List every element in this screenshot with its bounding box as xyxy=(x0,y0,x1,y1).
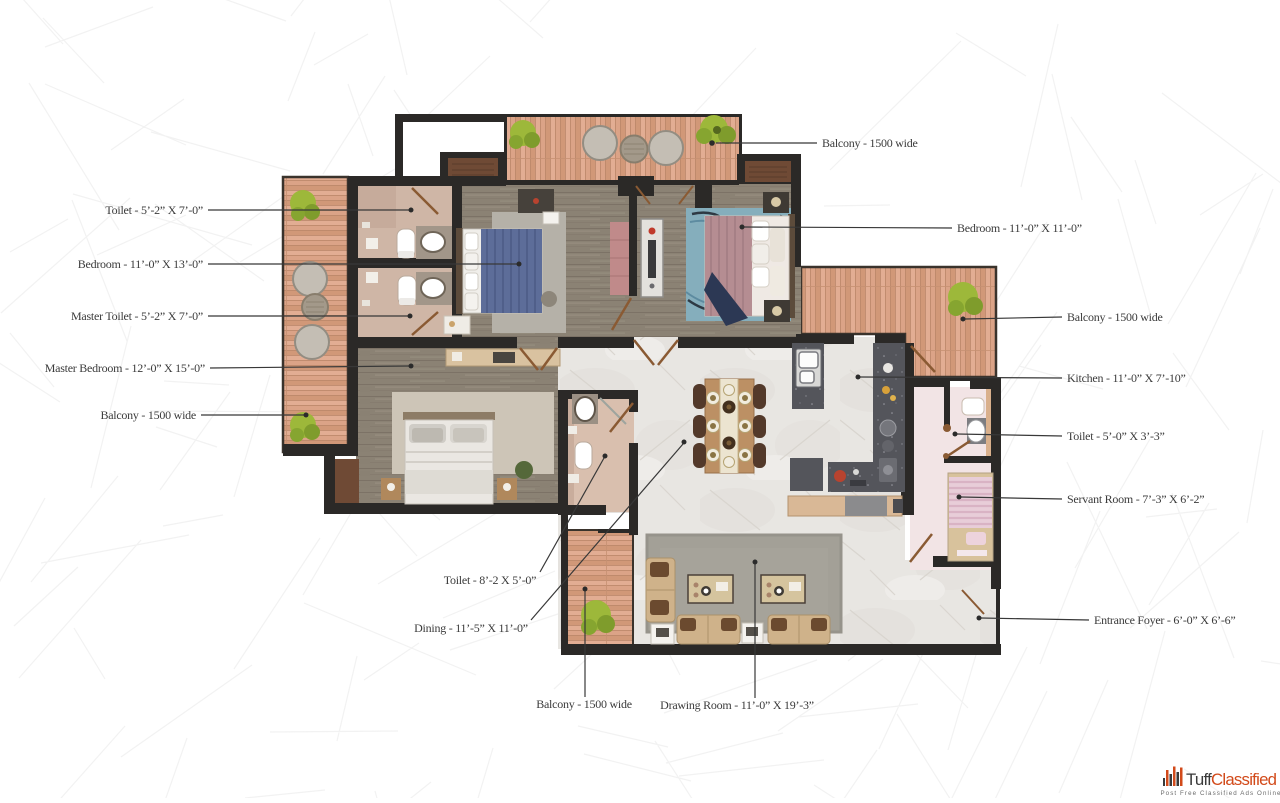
svg-text:Balcony - 1500 wide: Balcony - 1500 wide xyxy=(1067,310,1163,324)
svg-text:Toilet - 5’-0” X 3’-3”: Toilet - 5’-0” X 3’-3” xyxy=(1067,429,1165,443)
svg-text:Balcony - 1500 wide: Balcony - 1500 wide xyxy=(536,697,632,711)
svg-text:Drawing Room - 11’-0” X 19’-3”: Drawing Room - 11’-0” X 19’-3” xyxy=(660,698,814,712)
svg-text:Kitchen - 11’-0” X 7’-10”: Kitchen - 11’-0” X 7’-10” xyxy=(1067,371,1186,385)
svg-text:Master Toilet - 5’-2” X 7’-0”: Master Toilet - 5’-2” X 7’-0” xyxy=(71,309,203,323)
svg-text:Bedroom - 11’-0” X 11’-0”: Bedroom - 11’-0” X 11’-0” xyxy=(957,221,1082,235)
svg-text:Balcony - 1500 wide: Balcony - 1500 wide xyxy=(822,136,918,150)
svg-text:Master Bedroom - 12’-0” X 15’-: Master Bedroom - 12’-0” X 15’-0” xyxy=(45,361,205,375)
svg-text:Toilet - 8’-2 X 5’-0”: Toilet - 8’-2 X 5’-0” xyxy=(444,573,537,587)
svg-text:Post Free Classified Ads Onlin: Post Free Classified Ads Online xyxy=(1160,790,1280,797)
svg-text:Servant Room - 7’-3” X 6’-2”: Servant Room - 7’-3” X 6’-2” xyxy=(1067,492,1204,506)
svg-text:Entrance Foyer - 6’-0” X 6’-6: Entrance Foyer - 6’-0” X 6’-6” xyxy=(1094,613,1235,627)
svg-text:Toilet - 5’-2” X 7’-0”: Toilet - 5’-2” X 7’-0” xyxy=(105,203,203,217)
svg-text:Balcony - 1500 wide: Balcony - 1500 wide xyxy=(100,408,196,422)
svg-text:Dining - 11’-5” X 11’-0”: Dining - 11’-5” X 11’-0” xyxy=(414,621,528,635)
svg-text:TuffClassified: TuffClassified xyxy=(1186,770,1277,789)
svg-text:Bedroom - 11’-0” X 13’-0”: Bedroom - 11’-0” X 13’-0” xyxy=(78,257,203,271)
